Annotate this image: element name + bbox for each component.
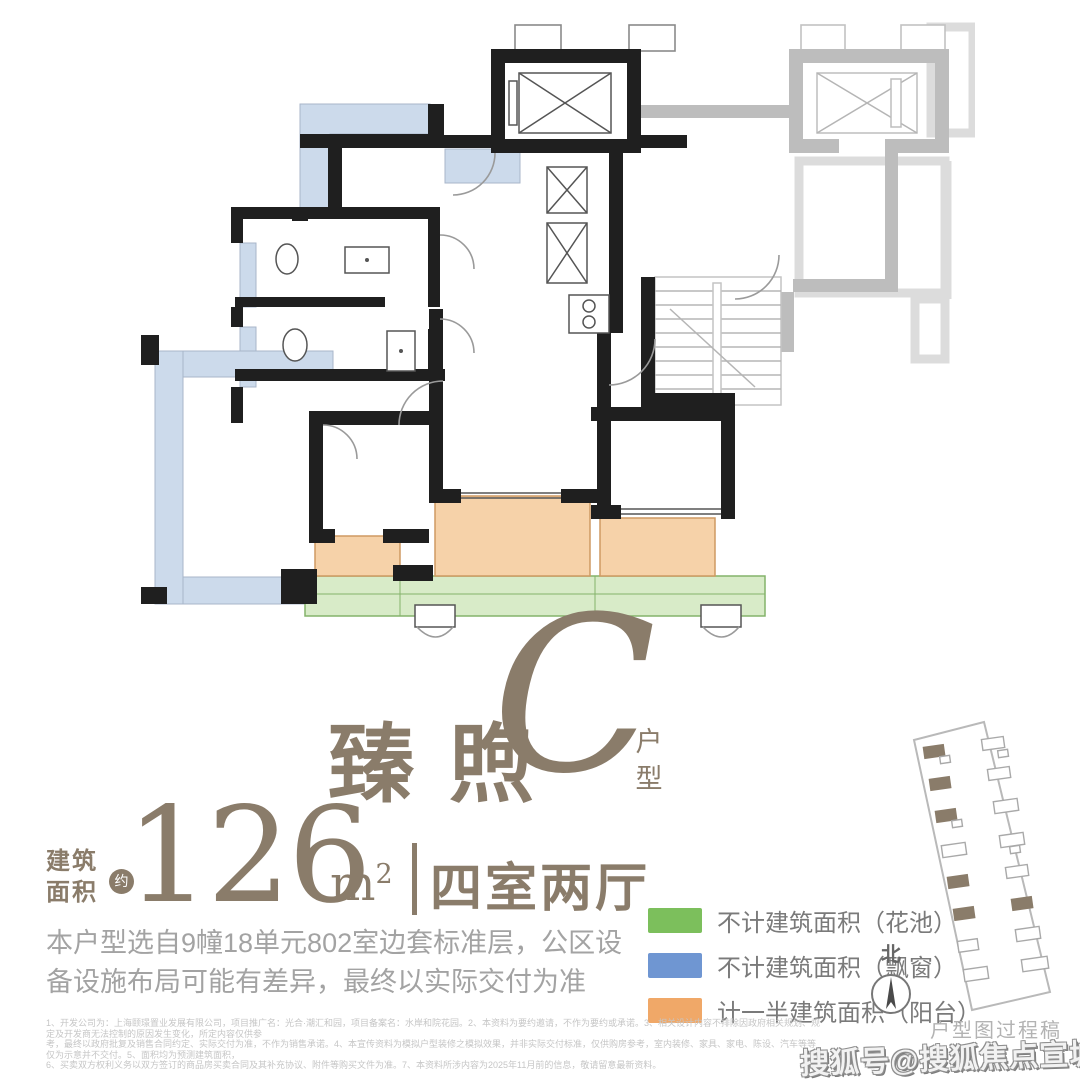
staircase bbox=[655, 277, 781, 405]
balcony-areas bbox=[315, 496, 715, 576]
area-label: 建筑 面积 bbox=[46, 846, 98, 908]
gray-elevator-core bbox=[789, 25, 949, 153]
floor-plan-drawing bbox=[95, 8, 975, 640]
green-swatch-icon bbox=[648, 908, 702, 933]
unit-type-letter: C bbox=[492, 588, 657, 803]
unit-description: 本户型选自9幢18单元802室边套标准层，公区设 备设施布局可能有差异，最终以实… bbox=[46, 924, 622, 1002]
site-plan bbox=[880, 700, 1070, 1030]
blue-swatch-icon bbox=[648, 953, 702, 978]
floorplan-poster: 臻煦 C 户 型 建筑 面积 约 126 m2 四室两厅 本户型选自9幢18单元… bbox=[0, 0, 1080, 1080]
unit-type-suffix: 户 型 bbox=[634, 724, 664, 798]
room-layout: 四室两厅 bbox=[430, 846, 650, 921]
area-unit: m2 bbox=[330, 856, 393, 912]
divider bbox=[412, 843, 417, 915]
elevator-core bbox=[491, 25, 675, 153]
watermark: 搜狐号@搜狐焦点宣城站 bbox=[799, 1031, 1078, 1080]
disclaimer-text: 1、开发公司为：上海颐璟置业发展有限公司，项目推广名：光合·潮汇和园，项目备案名… bbox=[46, 1018, 821, 1071]
